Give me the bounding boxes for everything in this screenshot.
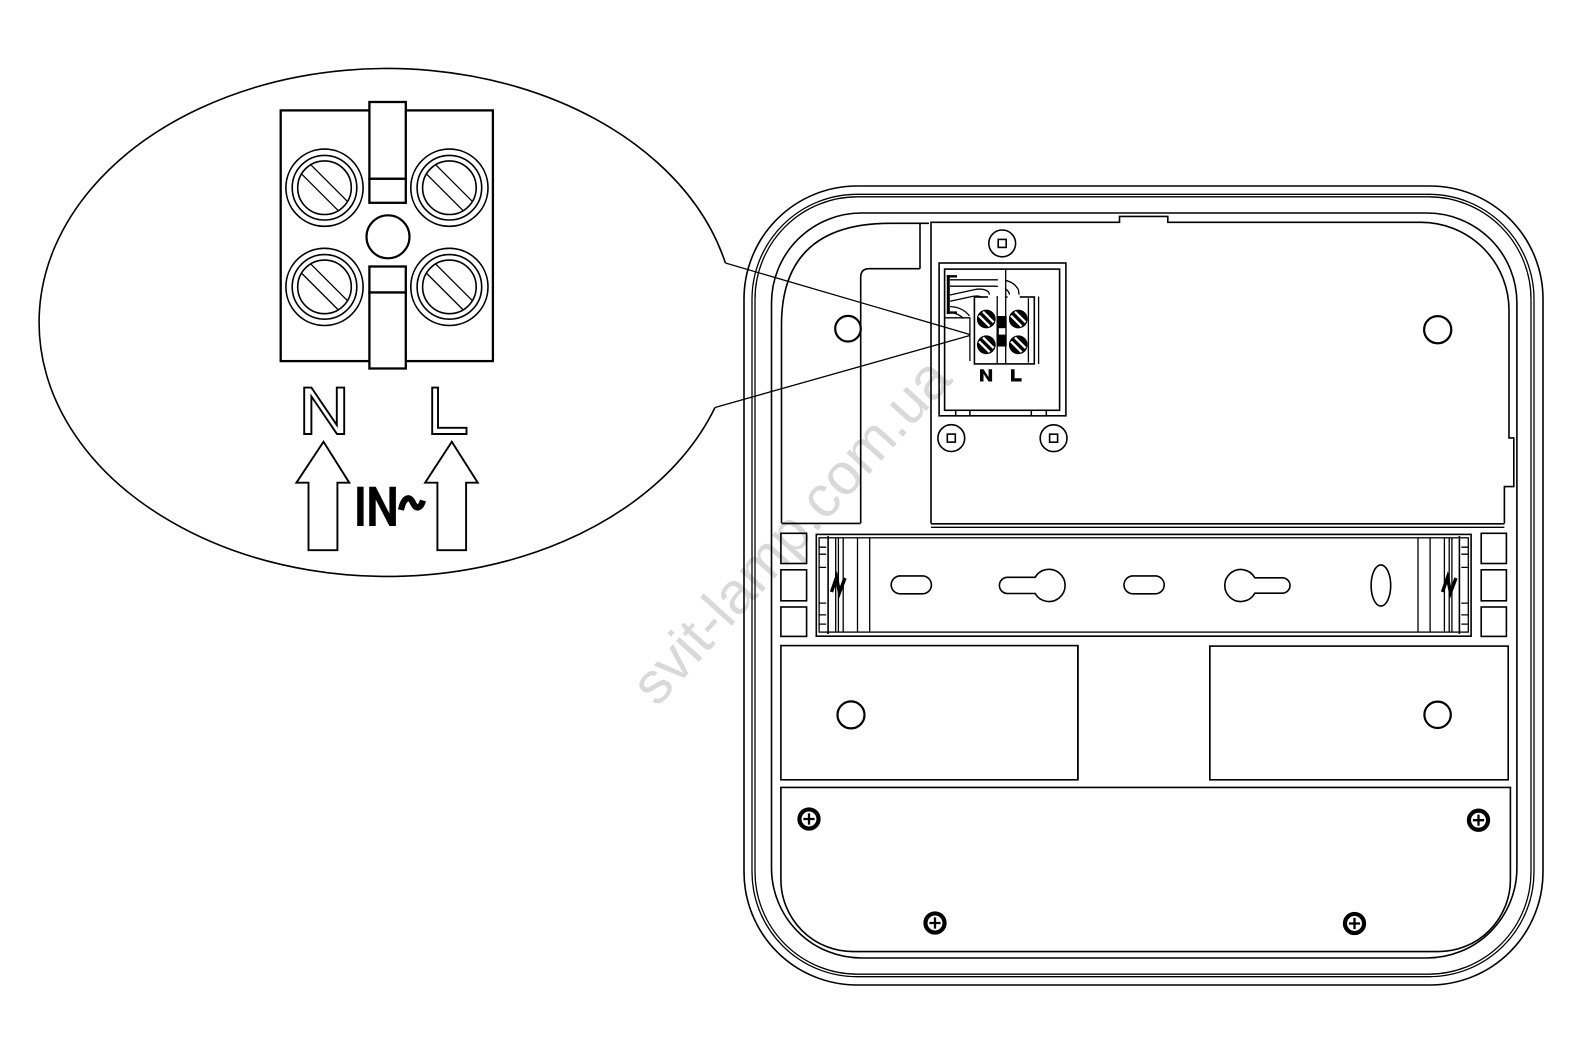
svg-text:svit-lamp.com.ua: svit-lamp.com.ua [618, 345, 963, 717]
